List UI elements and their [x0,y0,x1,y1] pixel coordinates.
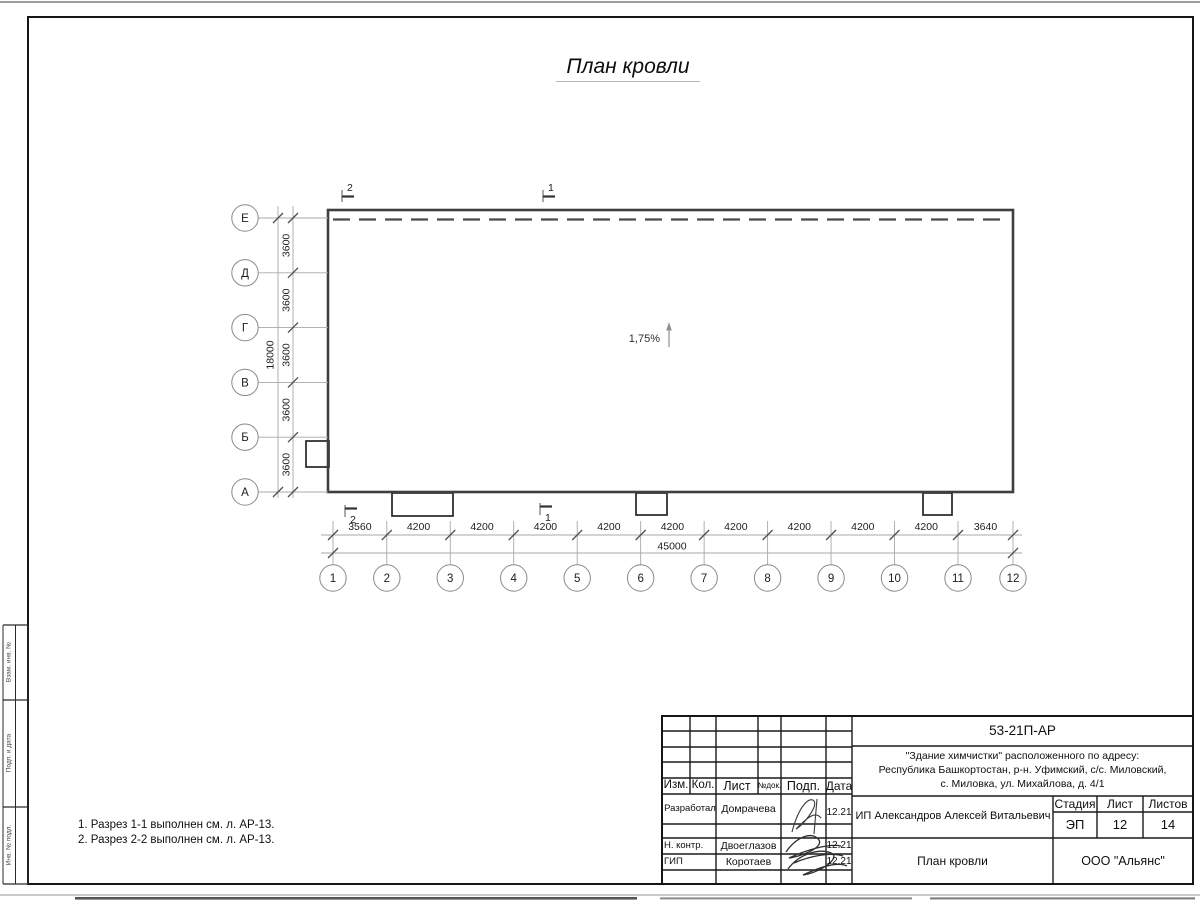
svg-text:18000: 18000 [265,340,277,369]
svg-text:4200: 4200 [788,521,812,533]
signer-role: Н. контр. [664,838,716,854]
svg-text:1: 1 [548,182,554,194]
page-title: План кровли [478,55,778,79]
side-strip-label: Взам. инв. № [6,642,13,682]
svg-text:45000: 45000 [657,541,686,553]
column-header-ndok: №док. [758,778,781,794]
svg-text:Г: Г [242,323,249,335]
address-line: "Здание химчистки" расположенного по адр… [906,750,1140,764]
svg-text:4200: 4200 [661,521,685,533]
signer-name: Двоеглазов [716,838,781,854]
sheets-total: 14 [1143,812,1193,838]
svg-text:9: 9 [828,573,834,585]
column-header-podp: Подп. [781,778,826,794]
stage-header: Стадия [1053,796,1097,812]
svg-text:4: 4 [511,573,518,585]
roof-protrusions [306,441,952,516]
svg-text:8: 8 [764,573,770,585]
notes-block: 1. Разрез 1-1 выполнен см. л. АР-13. 2. … [78,818,275,848]
svg-text:4200: 4200 [851,521,875,533]
note-line: 2. Разрез 2-2 выполнен см. л. АР-13. [78,833,275,848]
svg-text:2: 2 [350,514,356,526]
svg-text:3: 3 [447,573,453,585]
signer-date: 12.21 [826,838,852,854]
svg-text:3600: 3600 [281,398,293,422]
svg-text:3600: 3600 [281,453,293,477]
building-outline [328,210,1013,492]
sheets-total-header: Листов [1143,796,1193,812]
svg-text:12: 12 [1007,573,1020,585]
address-line: с. Миловка, ул. Михайлова, д. 4/1 [940,778,1104,792]
signer-date: 12.21 [826,854,852,870]
signer-name: Коротаев [716,854,781,870]
titleblock-address: "Здание химчистки" расположенного по адр… [857,747,1188,795]
stage-value: ЭП [1053,812,1097,838]
svg-text:10: 10 [888,573,901,585]
signer-date: 12.21 [826,802,852,824]
svg-text:3600: 3600 [281,288,293,312]
signer-role: ГИП [664,854,716,870]
slope-annotation: 1,75% [600,333,660,345]
svg-text:5: 5 [574,573,580,585]
svg-text:3640: 3640 [974,521,998,533]
sheet-header: Лист [1097,796,1143,812]
column-header-kol: Кол. [690,778,716,794]
svg-text:4200: 4200 [470,521,494,533]
column-header-data: Дата [826,778,852,794]
svg-text:7: 7 [701,573,707,585]
drawing-sheet: ЕДГВБА3600360036003600360018000123456789… [0,0,1200,900]
svg-text:11: 11 [952,573,964,585]
slope-arrow [666,322,672,347]
section-marks: 2121 [342,182,555,526]
horizontal-axes: 1234567891011123560420042004200420042004… [320,521,1026,591]
address-line: Республика Башкортостан, р-н. Уфимский, … [879,764,1167,778]
svg-text:Д: Д [241,268,249,280]
svg-text:Б: Б [241,432,249,444]
svg-text:4200: 4200 [407,521,431,533]
sheet-number: 12 [1097,812,1143,838]
titleblock-doc-number: 53-21П-АР [852,716,1193,746]
svg-text:А: А [241,487,249,499]
svg-text:Е: Е [241,213,249,225]
note-line: 1. Разрез 1-1 выполнен см. л. АР-13. [78,818,275,833]
side-strip-label: Подп. и дата [6,734,13,772]
titleblock-client: ИП Александров Алексей Витальевич [855,796,1051,838]
svg-text:6: 6 [637,573,643,585]
titleblock-sheet-title: План кровли [852,838,1053,884]
svg-text:1: 1 [545,512,551,524]
svg-text:4200: 4200 [597,521,621,533]
svg-text:3600: 3600 [281,343,293,367]
page-title-text: План кровли [556,55,699,82]
svg-text:4200: 4200 [915,521,939,533]
column-header-izm: Изм. [662,778,690,794]
signer-role: Разработал [664,794,716,824]
svg-text:4200: 4200 [724,521,748,533]
svg-text:2: 2 [347,182,353,194]
svg-text:В: В [241,377,249,389]
titleblock-company: ООО "Альянс" [1053,838,1193,884]
column-header-list: Лист [716,778,758,794]
svg-text:1: 1 [330,573,336,585]
svg-text:3600: 3600 [281,234,293,258]
signer-name: Домрачева [716,794,781,824]
side-strip-label: Инв. № подл. [6,825,13,866]
svg-text:2: 2 [384,573,390,585]
